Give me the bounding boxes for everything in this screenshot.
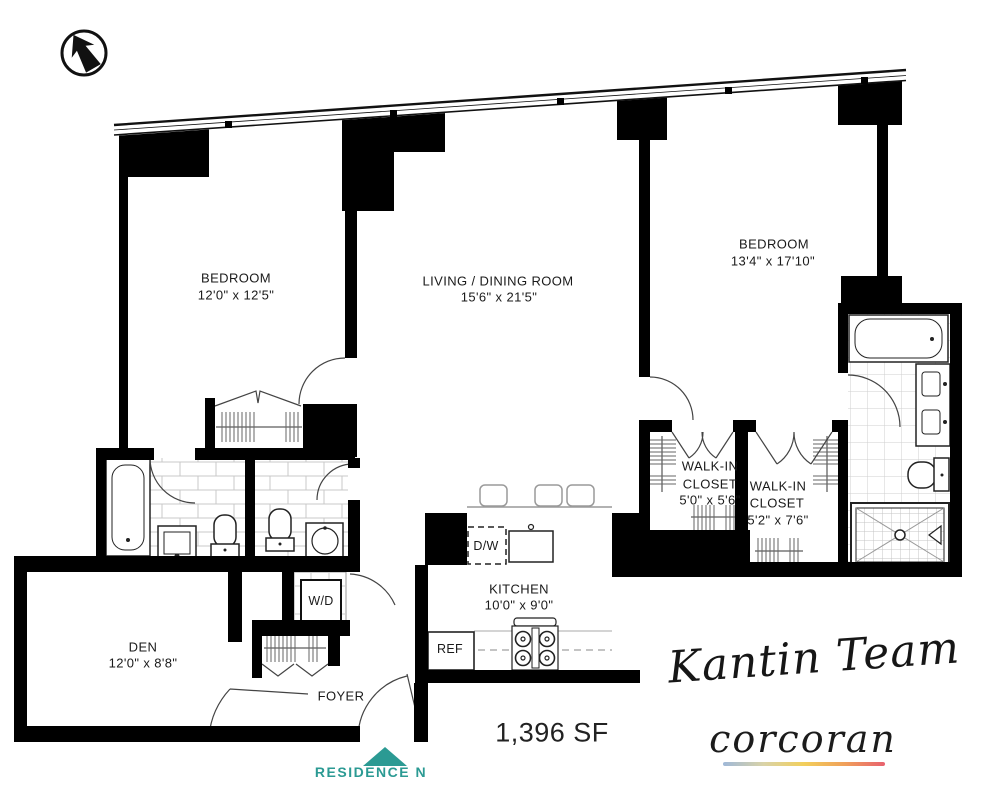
- walkin-closet-2-line1: WALK-IN: [750, 479, 807, 494]
- window-wall: [114, 70, 906, 136]
- entry-door-arc: [358, 674, 422, 737]
- kitchen-name: KITCHEN: [489, 582, 549, 597]
- brokerage-gradient-underline: [723, 762, 885, 766]
- walkin-closet-1-line2: CLOSET: [683, 477, 737, 492]
- living-dining-dims: 15'6" x 21'5": [461, 290, 538, 305]
- round-sink: [306, 523, 343, 558]
- bedroom-right-dims: 13'4" x 17'10": [731, 254, 815, 269]
- brokerage-logo: corcoran: [709, 717, 897, 761]
- vanity-sink: [158, 526, 196, 560]
- living-dining-name: LIVING / DINING ROOM: [422, 274, 573, 289]
- walkin-closet-2-line2: CLOSET: [750, 496, 804, 511]
- bedroom-left-name: BEDROOM: [201, 271, 271, 286]
- dishwasher-label: D/W: [473, 539, 498, 553]
- bedroom-right-name: BEDROOM: [739, 237, 809, 252]
- bedroom-left-dims: 12'0" x 12'5": [198, 288, 275, 303]
- den-name: DEN: [129, 640, 158, 655]
- den-dims: 12'0" x 8'8": [109, 656, 178, 671]
- kitchen-island-sink: [509, 525, 553, 563]
- walkin-closet-1-dims: 5'0" x 5'6": [679, 493, 740, 508]
- door-arc: [299, 358, 345, 404]
- toilet: [908, 458, 949, 491]
- kitchen-dims: 10'0" x 9'0": [485, 598, 554, 613]
- toilet: [211, 515, 239, 557]
- bar-stools: [480, 485, 594, 506]
- washer-dryer-label: W/D: [308, 594, 333, 608]
- door-arc: [350, 574, 395, 605]
- north-arrow-icon: [62, 28, 106, 75]
- closet-double-doors: [672, 432, 733, 458]
- door-arc: [650, 377, 693, 420]
- double-vanity: [916, 364, 950, 446]
- total-area-label: 1,396 SF: [495, 718, 609, 749]
- foyer-name: FOYER: [318, 689, 365, 704]
- walkin-closet-1-line1: WALK-IN: [682, 459, 739, 474]
- floor-plan-page: BEDROOM 12'0" x 12'5" LIVING / DINING RO…: [0, 0, 984, 800]
- shower: [851, 503, 949, 567]
- toilet: [266, 509, 294, 551]
- refrigerator-label: REF: [437, 642, 463, 656]
- bathtub: [849, 315, 948, 362]
- residence-label: RESIDENCE N: [315, 764, 427, 780]
- walkin-closet-2-dims: 5'2" x 7'6": [747, 513, 808, 528]
- bathtub: [106, 459, 150, 556]
- stove: [512, 618, 558, 670]
